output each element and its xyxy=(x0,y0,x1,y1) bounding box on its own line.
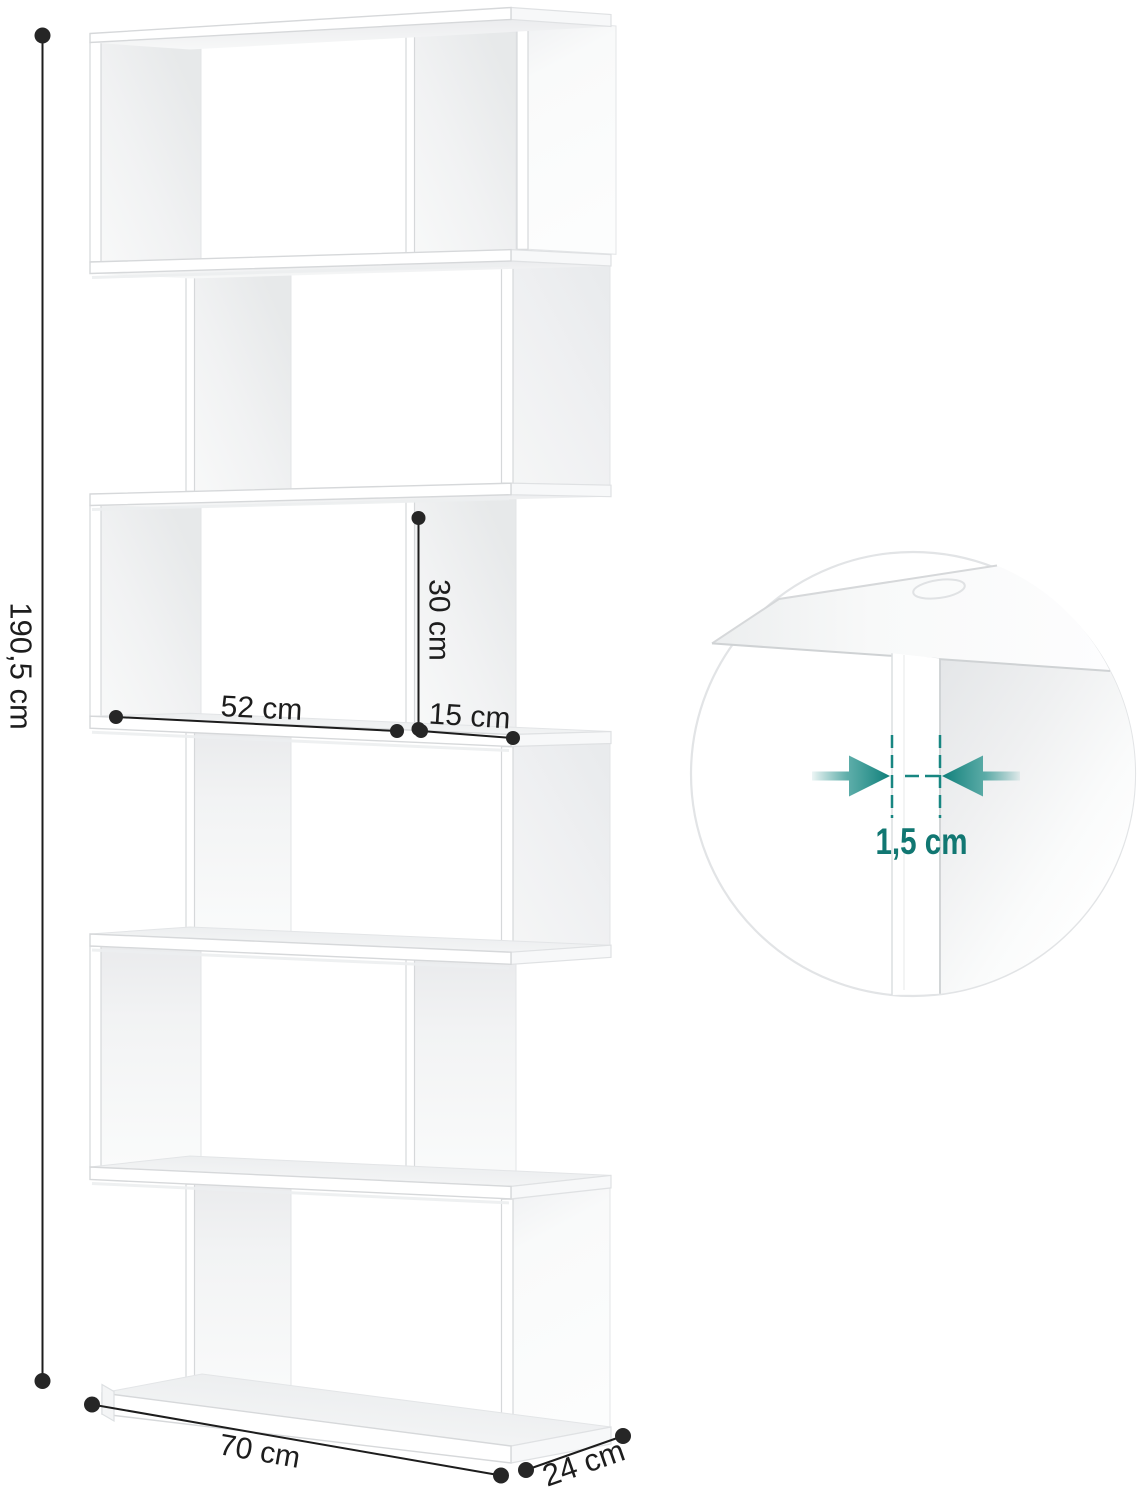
svg-text:1,5 cm: 1,5 cm xyxy=(876,821,968,862)
svg-text:190,5 cm: 190,5 cm xyxy=(3,602,38,730)
svg-text:15 cm: 15 cm xyxy=(428,698,512,736)
svg-text:30 cm: 30 cm xyxy=(423,579,456,661)
svg-text:52 cm: 52 cm xyxy=(220,690,303,727)
